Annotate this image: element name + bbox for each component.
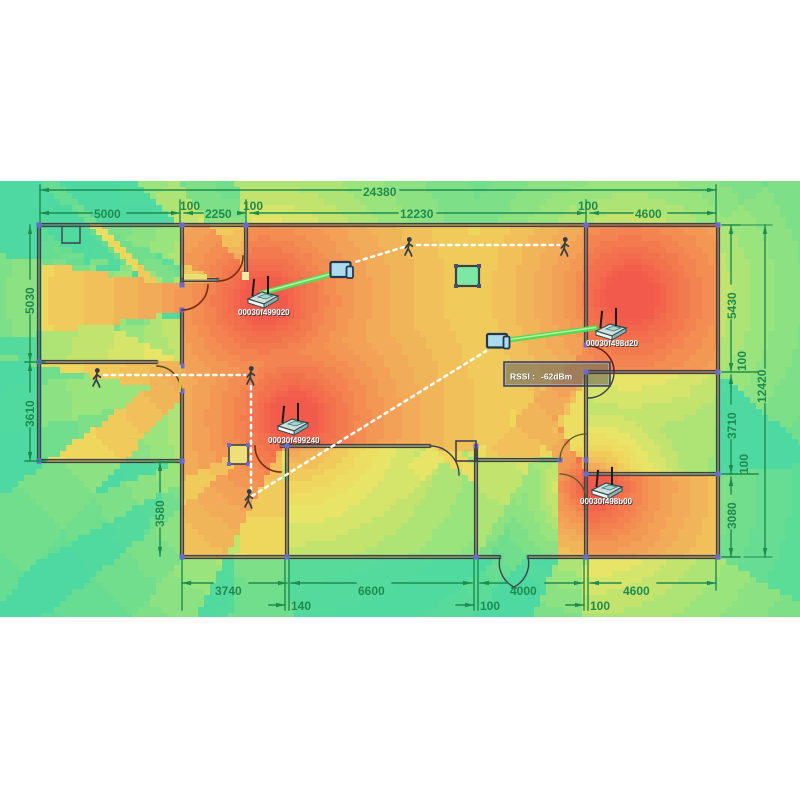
svg-text:3710: 3710 [725, 412, 739, 439]
svg-text:140: 140 [291, 599, 311, 613]
svg-text:100: 100 [590, 599, 610, 613]
svg-text:4000: 4000 [510, 584, 537, 598]
svg-text:RSSI :: RSSI : [510, 372, 535, 382]
svg-text:6600: 6600 [358, 584, 385, 598]
svg-text:100: 100 [180, 199, 200, 213]
svg-text:100: 100 [578, 199, 598, 213]
svg-text:4600: 4600 [635, 207, 662, 221]
svg-text:5000: 5000 [94, 207, 121, 221]
svg-text:00030f499020: 00030f499020 [238, 308, 290, 317]
svg-text:24380: 24380 [363, 185, 397, 199]
svg-text:3610: 3610 [23, 400, 37, 427]
svg-text:4600: 4600 [623, 584, 650, 598]
svg-text:00030f498b00: 00030f498b00 [580, 497, 633, 506]
svg-text:-62dBm: -62dBm [541, 372, 573, 382]
svg-text:12420: 12420 [755, 369, 769, 403]
svg-text:3080: 3080 [725, 502, 739, 529]
svg-text:5030: 5030 [23, 287, 37, 314]
svg-text:00030f498d20: 00030f498d20 [586, 339, 639, 348]
svg-text:100: 100 [735, 351, 749, 371]
svg-text:2250: 2250 [205, 207, 232, 221]
svg-text:100: 100 [243, 199, 263, 213]
svg-text:12230: 12230 [400, 207, 434, 221]
svg-text:100: 100 [737, 454, 751, 474]
svg-text:5430: 5430 [725, 292, 739, 319]
svg-text:00030f499240: 00030f499240 [268, 436, 320, 445]
svg-text:100: 100 [480, 599, 500, 613]
svg-text:3580: 3580 [153, 500, 167, 527]
svg-text:3740: 3740 [215, 584, 242, 598]
